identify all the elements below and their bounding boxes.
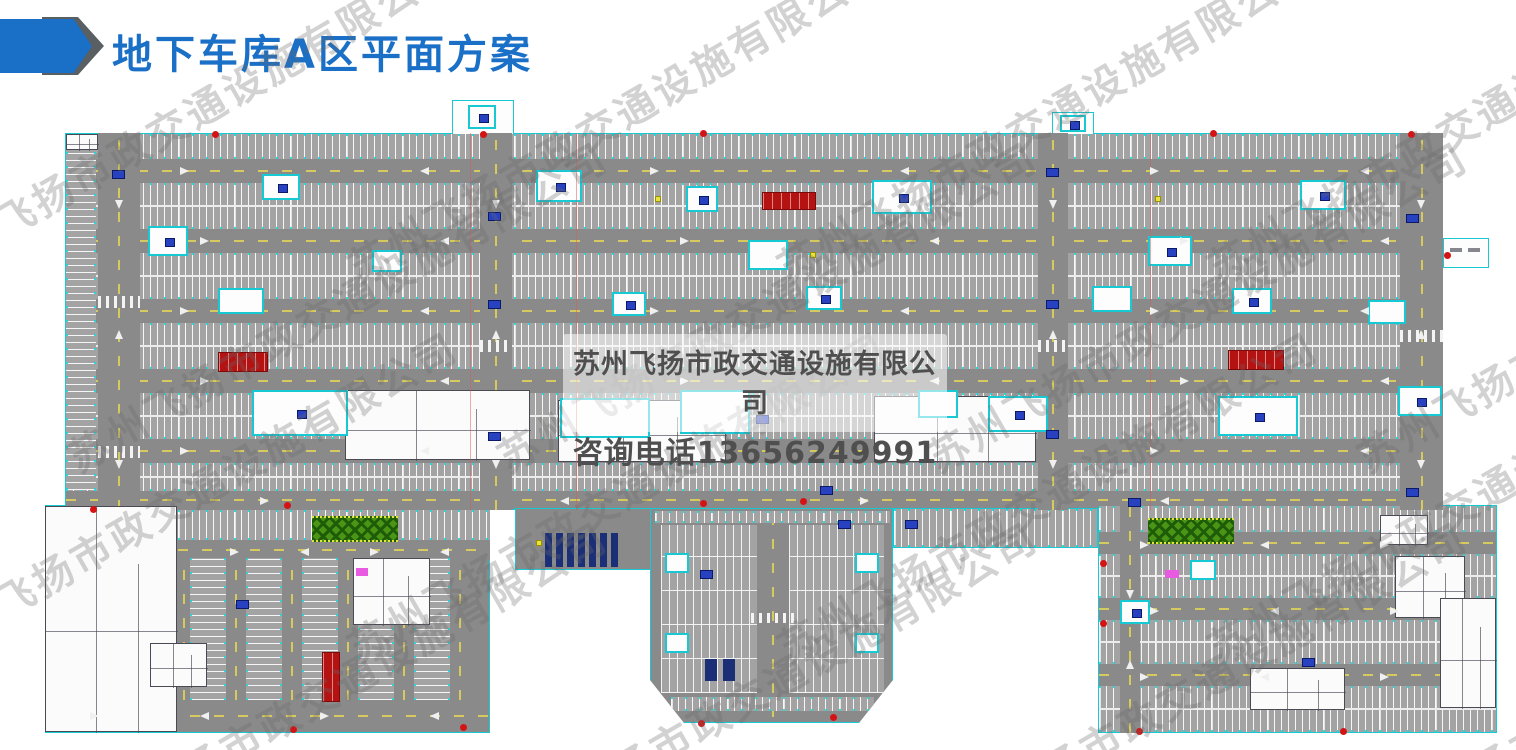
lane-arrow — [1140, 541, 1149, 549]
vent-slot — [1450, 248, 1462, 252]
lane-arrow — [900, 167, 909, 175]
lane-arrow — [430, 712, 439, 720]
elevator-chip — [1320, 192, 1330, 201]
yellow-marker — [810, 252, 816, 258]
lane-arrow — [420, 447, 429, 455]
stair-core — [252, 390, 348, 436]
equipment-room — [66, 134, 98, 150]
fire-hydrant-marker — [700, 500, 707, 507]
stair-core — [988, 396, 1048, 432]
lane-arrow — [492, 330, 500, 339]
elevator-chip — [626, 301, 636, 310]
lane-arrow — [1380, 237, 1389, 245]
lane-arrow — [1126, 660, 1134, 669]
room-wall — [1441, 660, 1497, 661]
landscape-strip — [312, 516, 398, 542]
lane-arrow — [900, 307, 909, 315]
zebra-crossing — [1038, 340, 1068, 352]
elevator-chip — [699, 196, 709, 205]
stair-core — [872, 180, 932, 214]
sign-chip — [488, 432, 501, 441]
stair-core — [372, 250, 402, 272]
fire-hydrant-marker — [460, 724, 467, 731]
fire-hydrant-marker — [480, 131, 487, 138]
lane-arrow — [230, 548, 239, 556]
lane-arrow — [930, 237, 939, 245]
room-wall — [138, 564, 139, 734]
grid-hairline — [470, 133, 471, 510]
room-wall — [354, 596, 431, 597]
drive-aisle — [450, 558, 470, 700]
parking-column — [66, 150, 96, 490]
parking-row — [655, 511, 890, 523]
room-wall — [96, 507, 97, 733]
lane-arrow — [1126, 590, 1134, 599]
sign-chip — [1302, 658, 1315, 667]
lane-arrow — [1150, 167, 1159, 175]
stair-core — [1368, 300, 1406, 324]
stair-core — [1398, 386, 1442, 416]
watermark-band: 苏州飞扬市政交通设施有限公司 咨询电话13656249991 — [563, 334, 947, 432]
stair-core — [218, 288, 264, 314]
drive-aisle — [226, 558, 246, 700]
lane-arrow — [1049, 200, 1057, 209]
lane-arrow — [200, 377, 209, 385]
page-title: 地下车库A区平面方案 — [112, 22, 533, 80]
lane-arrow — [1049, 460, 1057, 469]
bike-rack-bar — [589, 533, 596, 567]
drive-aisle — [1400, 133, 1443, 510]
lane-arrow — [650, 167, 659, 175]
fire-hydrant-marker — [212, 131, 219, 138]
red-parking-block — [322, 652, 340, 702]
room-wall — [1480, 627, 1481, 710]
watermark-company: 苏州飞扬市政交通设施有限公司 — [563, 342, 947, 420]
lane-arrow — [1360, 307, 1369, 315]
lane-arrow — [1180, 237, 1189, 245]
bike-rack-bar — [545, 533, 552, 567]
lane-arrow — [440, 548, 449, 556]
lane-arrow — [420, 307, 429, 315]
lane-arrow — [860, 497, 869, 505]
stair-core — [748, 240, 788, 270]
title-arrow-icon — [0, 19, 92, 73]
stair-core — [806, 286, 842, 310]
stair-core — [665, 633, 689, 653]
lane-arrow — [420, 167, 429, 175]
room-wall — [1396, 591, 1466, 592]
fire-hydrant-marker — [1100, 560, 1107, 567]
stair-core — [855, 633, 879, 653]
lane-arrow — [1380, 673, 1389, 681]
fire-hydrant-marker — [1100, 620, 1107, 627]
fire-hydrant-marker — [90, 506, 97, 513]
sign-chip — [112, 170, 125, 179]
equipment-room — [1440, 598, 1496, 708]
parking-grid — [789, 525, 884, 693]
elevator-chip — [821, 295, 831, 304]
watermark-phone-number: 13656249991 — [697, 436, 938, 471]
lane-arrow — [180, 307, 189, 315]
red-parking-block — [1228, 350, 1284, 370]
room-wall — [476, 409, 477, 462]
room-wall — [151, 668, 208, 669]
fire-hydrant-marker — [290, 726, 297, 733]
elevator-chip — [1417, 398, 1427, 407]
lane-arrow — [200, 237, 209, 245]
sign-chip — [700, 570, 713, 579]
zone-mid-lobe — [650, 508, 893, 723]
lane-arrow — [1150, 447, 1159, 455]
lane-arrow — [260, 497, 269, 505]
sign-chip — [1128, 498, 1141, 507]
lane-arrow — [320, 712, 329, 720]
sign-chip — [488, 300, 501, 309]
red-parking-block — [218, 352, 268, 372]
stair-core — [148, 226, 188, 256]
lane-arrow — [440, 377, 449, 385]
watermark-phone: 咨询电话13656249991 — [563, 428, 947, 472]
zebra-crossing — [98, 296, 140, 308]
sign-chip — [1406, 214, 1419, 223]
lane-arrow — [1390, 607, 1399, 615]
stair-core — [468, 105, 496, 129]
drive-aisle — [1038, 133, 1068, 510]
elevator-chip — [1015, 411, 1025, 420]
lane-arrow — [560, 497, 569, 505]
red-parking-block — [762, 192, 816, 210]
elevator-chip — [165, 238, 175, 247]
stair-core — [612, 292, 646, 316]
lane-arrow — [1260, 541, 1269, 549]
elevator-chip — [1070, 121, 1080, 130]
lane-arrow — [1360, 167, 1369, 175]
lane-arrow — [370, 548, 379, 556]
pink-marker — [1165, 570, 1179, 578]
zebra-crossing — [98, 446, 140, 458]
parking-row — [671, 697, 874, 711]
fire-hydrant-marker — [1136, 728, 1143, 735]
room-wall — [1381, 533, 1429, 534]
lane-arrow — [200, 712, 209, 720]
lane-arrow — [1380, 541, 1389, 549]
yellow-marker — [1155, 196, 1161, 202]
bike-rack-bar — [705, 659, 717, 681]
lane-arrow — [1380, 377, 1389, 385]
stair-core — [855, 553, 879, 573]
lane-arrow — [492, 460, 500, 469]
lane-arrow — [650, 307, 659, 315]
lane-arrow — [492, 200, 500, 209]
parking-row — [1099, 620, 1496, 664]
room-wall — [1415, 524, 1416, 547]
sign-chip — [1046, 168, 1059, 177]
room-wall — [89, 139, 90, 151]
elevator-chip — [556, 183, 566, 192]
lane-arrow — [1417, 460, 1425, 469]
fire-hydrant-marker — [800, 498, 807, 505]
lane-arrow — [1049, 330, 1057, 339]
sign-chip — [1046, 430, 1059, 439]
room-wall — [383, 559, 384, 626]
fire-hydrant-marker — [1444, 252, 1451, 259]
sign-chip — [820, 486, 833, 495]
vent-slot — [1468, 248, 1480, 252]
elevator-chip — [1167, 248, 1177, 257]
elevator-chip — [297, 410, 307, 419]
stair-core — [1232, 288, 1272, 314]
lane-arrow — [1150, 307, 1159, 315]
room-wall — [1462, 599, 1463, 709]
slide: 地下车库A区平面方案 苏州飞扬市政交通设施有限公司苏州飞扬市政交通设施有限公司苏… — [0, 0, 1516, 750]
lane-arrow — [1150, 607, 1159, 615]
landscape-strip — [1148, 518, 1234, 544]
lane-arrow — [115, 460, 123, 469]
stair-core — [665, 553, 689, 573]
bike-rack-bar — [567, 533, 574, 567]
stair-core — [1092, 286, 1132, 312]
lane-arrow — [1417, 330, 1425, 339]
elevator-chip — [1132, 609, 1142, 618]
bike-rack-bar — [556, 533, 563, 567]
room-wall — [1399, 516, 1400, 546]
elevator-chip — [899, 194, 909, 203]
stair-core — [686, 186, 718, 212]
room-wall — [346, 430, 531, 431]
equipment-room — [345, 390, 530, 460]
fire-hydrant-marker — [698, 720, 705, 727]
lane-arrow — [1260, 673, 1269, 681]
stair-core — [1060, 115, 1086, 132]
bike-rack-bar — [723, 659, 735, 681]
lane-arrow — [115, 200, 123, 209]
stair-core — [262, 174, 300, 200]
drive-aisle — [282, 558, 302, 700]
sign-chip — [1046, 300, 1059, 309]
room-wall — [191, 655, 192, 688]
sign-chip — [1406, 488, 1419, 497]
lane-arrow — [180, 447, 189, 455]
fire-hydrant-marker — [284, 502, 291, 509]
sign-chip — [905, 520, 918, 529]
lane-arrow — [1140, 673, 1149, 681]
sign-chip — [236, 600, 249, 609]
room-wall — [173, 644, 174, 688]
stair-core — [1218, 396, 1298, 436]
parking-row — [894, 509, 1097, 547]
zebra-crossing — [751, 613, 795, 623]
room-wall — [1318, 680, 1319, 712]
fire-hydrant-marker — [1408, 131, 1415, 138]
room-wall — [1423, 557, 1424, 619]
yellow-marker — [655, 196, 661, 202]
sign-chip — [838, 520, 851, 529]
lane-arrow — [1270, 607, 1279, 615]
bike-rack-bar — [611, 533, 618, 567]
watermark-phone-label: 咨询电话 — [573, 436, 697, 471]
pink-marker — [356, 568, 368, 576]
lane-arrow — [1160, 497, 1169, 505]
lane-arrow — [90, 712, 99, 720]
equipment-room — [150, 643, 207, 687]
room-wall — [67, 144, 99, 145]
lane-arrow — [440, 237, 449, 245]
fire-hydrant-marker — [1210, 130, 1217, 137]
stair-core — [1190, 560, 1216, 580]
lane-arrow — [1180, 377, 1189, 385]
parking-column — [246, 558, 282, 700]
room-wall — [46, 631, 178, 632]
elevator-chip — [278, 184, 288, 193]
parking-row — [66, 134, 1442, 159]
room-wall — [1287, 669, 1288, 711]
lane-arrow — [1417, 200, 1425, 209]
bike-rack-bar — [578, 533, 585, 567]
elevator-chip — [479, 114, 489, 123]
room-wall — [416, 391, 417, 461]
room-wall — [408, 576, 409, 626]
elevator-chip — [1255, 413, 1265, 422]
lane-arrow — [680, 237, 689, 245]
sign-chip — [488, 212, 501, 221]
lane-arrow — [1360, 447, 1369, 455]
stair-core — [1300, 180, 1346, 210]
bike-rack-bar — [600, 533, 607, 567]
fire-hydrant-marker — [700, 130, 707, 137]
elevator-chip — [1249, 298, 1259, 307]
yellow-marker — [536, 540, 542, 546]
room-wall — [1251, 692, 1346, 693]
fire-hydrant-marker — [830, 714, 837, 721]
lane-arrow — [300, 548, 309, 556]
fire-hydrant-marker — [1340, 728, 1347, 735]
stair-core — [1120, 600, 1150, 624]
zebra-crossing — [480, 340, 512, 352]
lane-arrow — [115, 330, 123, 339]
equipment-room — [45, 506, 177, 732]
lane-arrow — [180, 167, 189, 175]
